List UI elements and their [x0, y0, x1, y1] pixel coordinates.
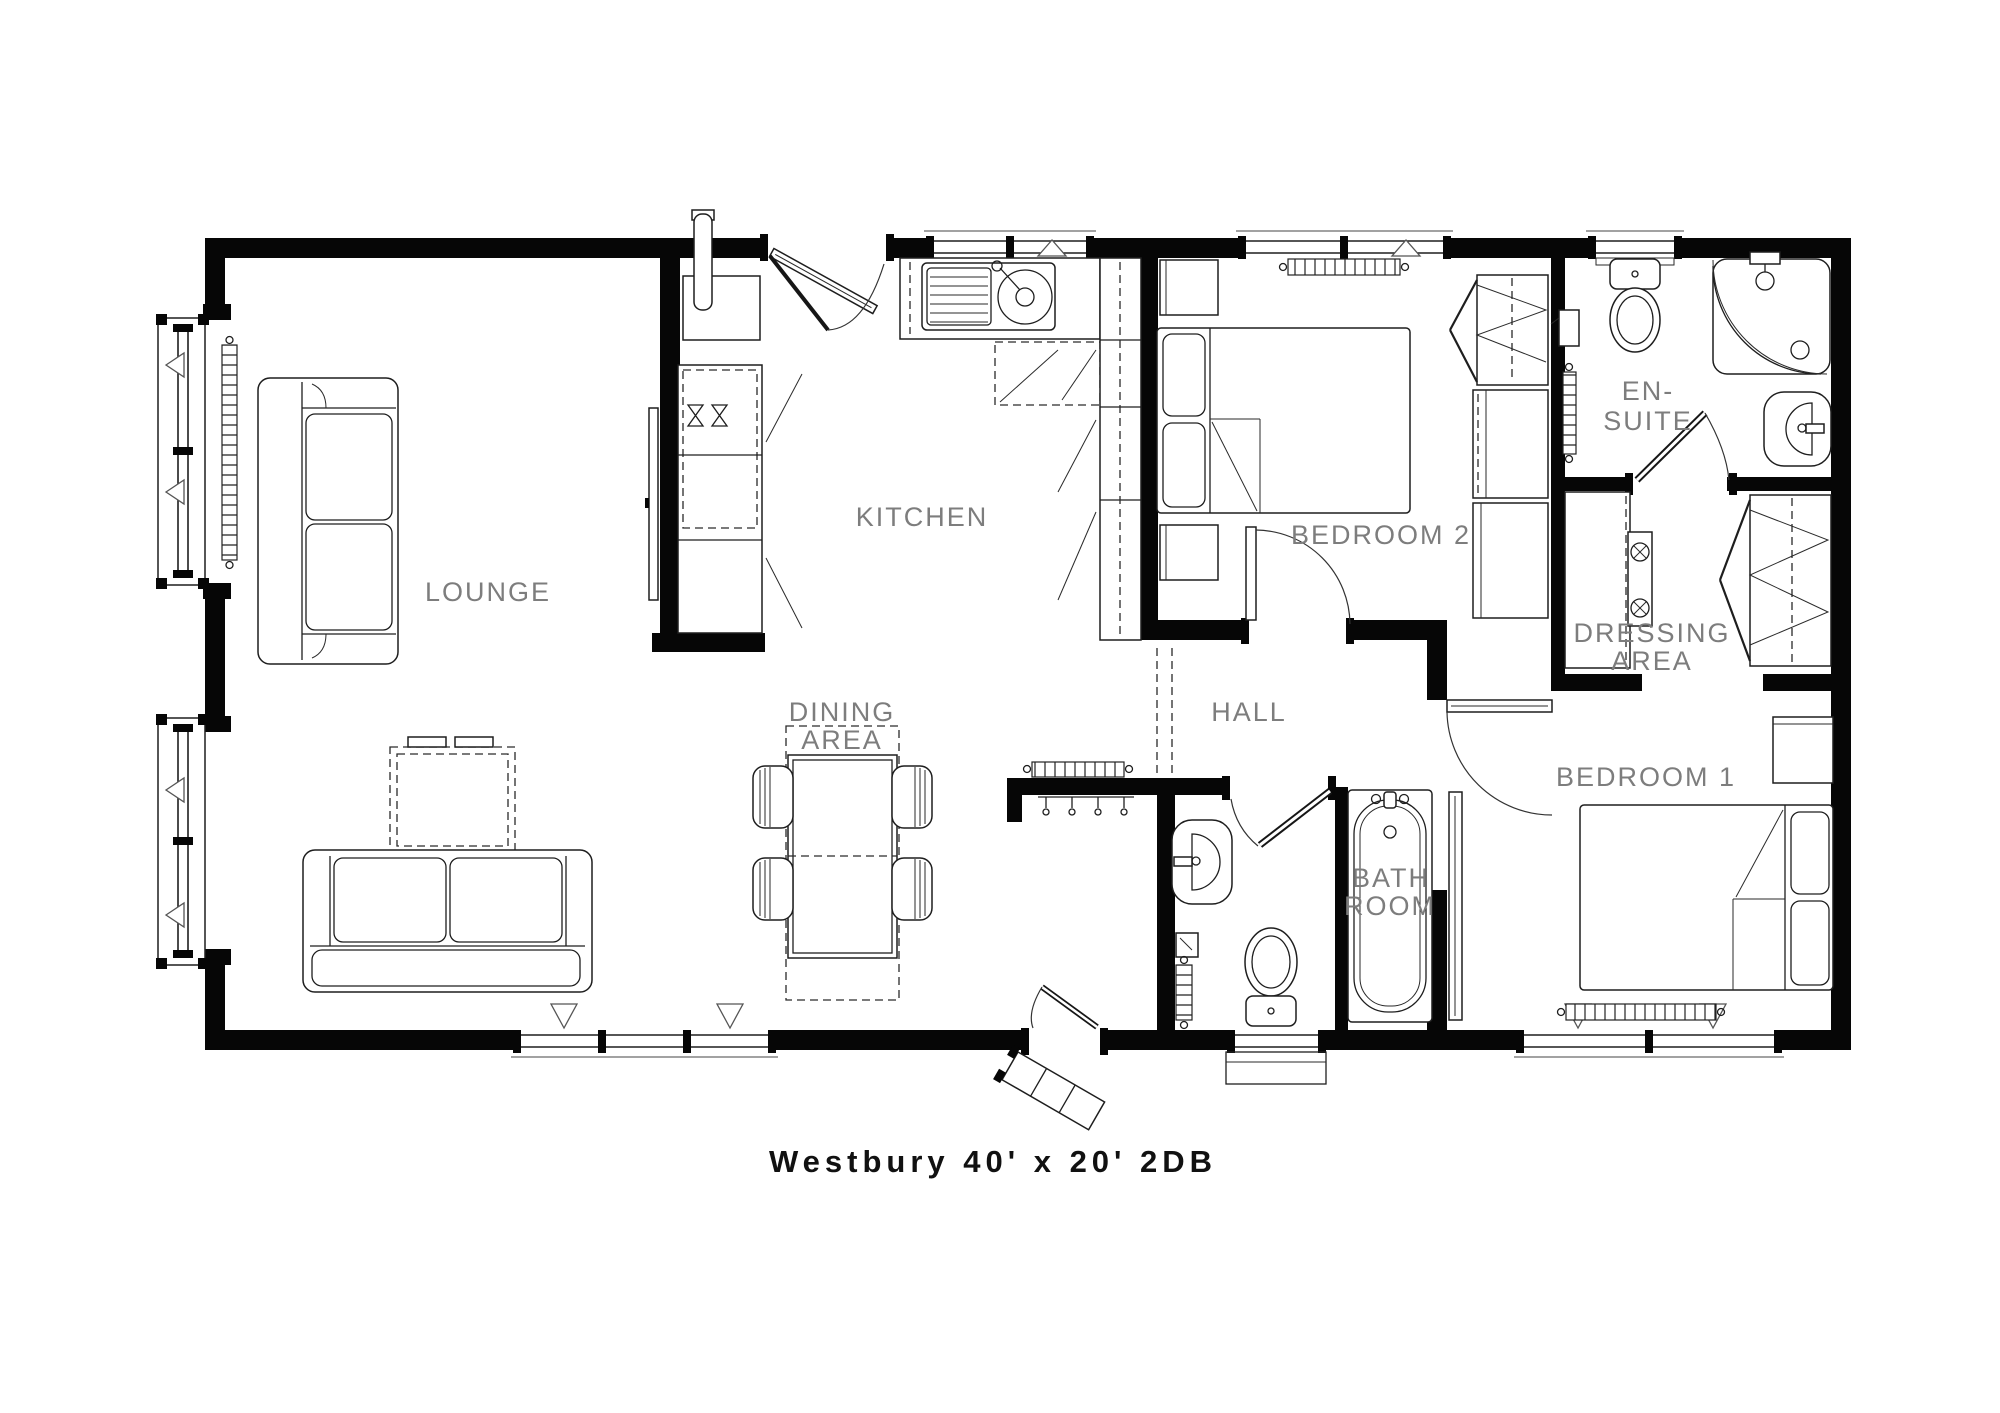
bed-icon — [1157, 328, 1410, 513]
lounge-label: LOUNGE — [425, 577, 551, 607]
bay-window-2-icon — [156, 714, 209, 969]
dressing-label-2: AREA — [1611, 646, 1693, 676]
screen-panel-icon — [1449, 792, 1462, 1020]
toilet-icon — [1245, 928, 1297, 1026]
floor-plan-page: LOUNGE DINING AREA — [0, 0, 2000, 1413]
room-dining: DINING AREA — [753, 697, 932, 1000]
coat-hooks-icon — [1038, 797, 1134, 815]
toilet-icon — [1610, 259, 1660, 352]
basin-icon — [1764, 392, 1831, 466]
basin-icon — [1172, 820, 1232, 904]
back-door-icon — [1021, 987, 1108, 1055]
sofa-icon — [303, 850, 592, 992]
kitchen-label: KITCHEN — [856, 502, 989, 532]
shelf-icon — [1176, 933, 1198, 957]
room-hall: HALL — [1024, 697, 1287, 815]
bathroom-window-icon — [1226, 1030, 1326, 1084]
radiator-icon — [222, 337, 237, 569]
chair-icon — [753, 766, 793, 828]
radiator-icon — [1558, 1004, 1725, 1020]
room-bathroom: BATH ROOM — [1172, 790, 1436, 1029]
room-dressing: DRESSING AREA — [1565, 492, 1831, 676]
coffee-table-icon — [390, 737, 515, 853]
wardrobe-icon — [1450, 275, 1548, 385]
kitchen-window-icon — [924, 231, 1096, 259]
sofa-icon — [258, 378, 398, 664]
bathroom-door-icon — [1222, 776, 1336, 846]
floor-plan-svg: LOUNGE DINING AREA — [0, 0, 2000, 1413]
chair-icon — [892, 858, 932, 920]
room-ensuite: EN- SUITE — [1551, 252, 1831, 466]
bedside-cabinet-icon — [1160, 260, 1218, 315]
wardrobe-icon — [1720, 495, 1831, 666]
room-bedroom1: BEDROOM 1 — [1449, 717, 1833, 1020]
ensuite-label-2: SUITE — [1603, 406, 1693, 436]
bedside-cabinet-icon — [1773, 717, 1833, 783]
dressing-label-1: DRESSING — [1573, 618, 1730, 648]
chair-icon — [753, 858, 793, 920]
dining-table-icon — [788, 755, 897, 958]
chair-icon — [892, 766, 932, 828]
steps-icon — [993, 1045, 1107, 1134]
bedroom1-label: BEDROOM 1 — [1556, 762, 1736, 792]
radiator-icon — [1024, 762, 1133, 777]
utility-cupboard-icon — [678, 365, 802, 633]
bed-icon — [1580, 805, 1833, 990]
shower-icon — [1713, 252, 1830, 374]
plan-title: Westbury 40' x 20' 2DB — [769, 1144, 1217, 1179]
dresser-icon — [1473, 503, 1548, 618]
radiator-icon — [1280, 259, 1409, 275]
hall-passage-opening — [1157, 648, 1172, 775]
bathroom-label-1: BATH — [1352, 863, 1430, 893]
towel-rail-icon — [1176, 957, 1192, 1029]
kitchen-sink-icon — [900, 258, 1100, 339]
dining-area-label-1: DINING — [789, 697, 896, 727]
room-lounge: LOUNGE — [222, 337, 658, 993]
bedroom2-label: BEDROOM 2 — [1291, 520, 1471, 550]
entrance-door-icon — [760, 234, 894, 330]
dining-area-label-2: AREA — [801, 725, 883, 755]
room-bedroom2: BEDROOM 2 — [1157, 259, 1548, 618]
bathroom-label-2: ROOM — [1344, 891, 1436, 921]
bedroom2-window-icon — [1236, 231, 1453, 259]
bedside-cabinet-icon — [1160, 525, 1218, 580]
lounge-window-icon — [511, 1004, 778, 1057]
ensuite-label-1: EN- — [1622, 376, 1675, 406]
hall-label: HALL — [1211, 697, 1287, 727]
room-kitchen: KITCHEN — [678, 210, 1141, 640]
boiler-cupboard-icon — [683, 210, 760, 340]
tv-unit-icon — [645, 408, 658, 600]
bay-window-1-icon — [156, 314, 209, 589]
dresser-icon — [1473, 390, 1548, 498]
